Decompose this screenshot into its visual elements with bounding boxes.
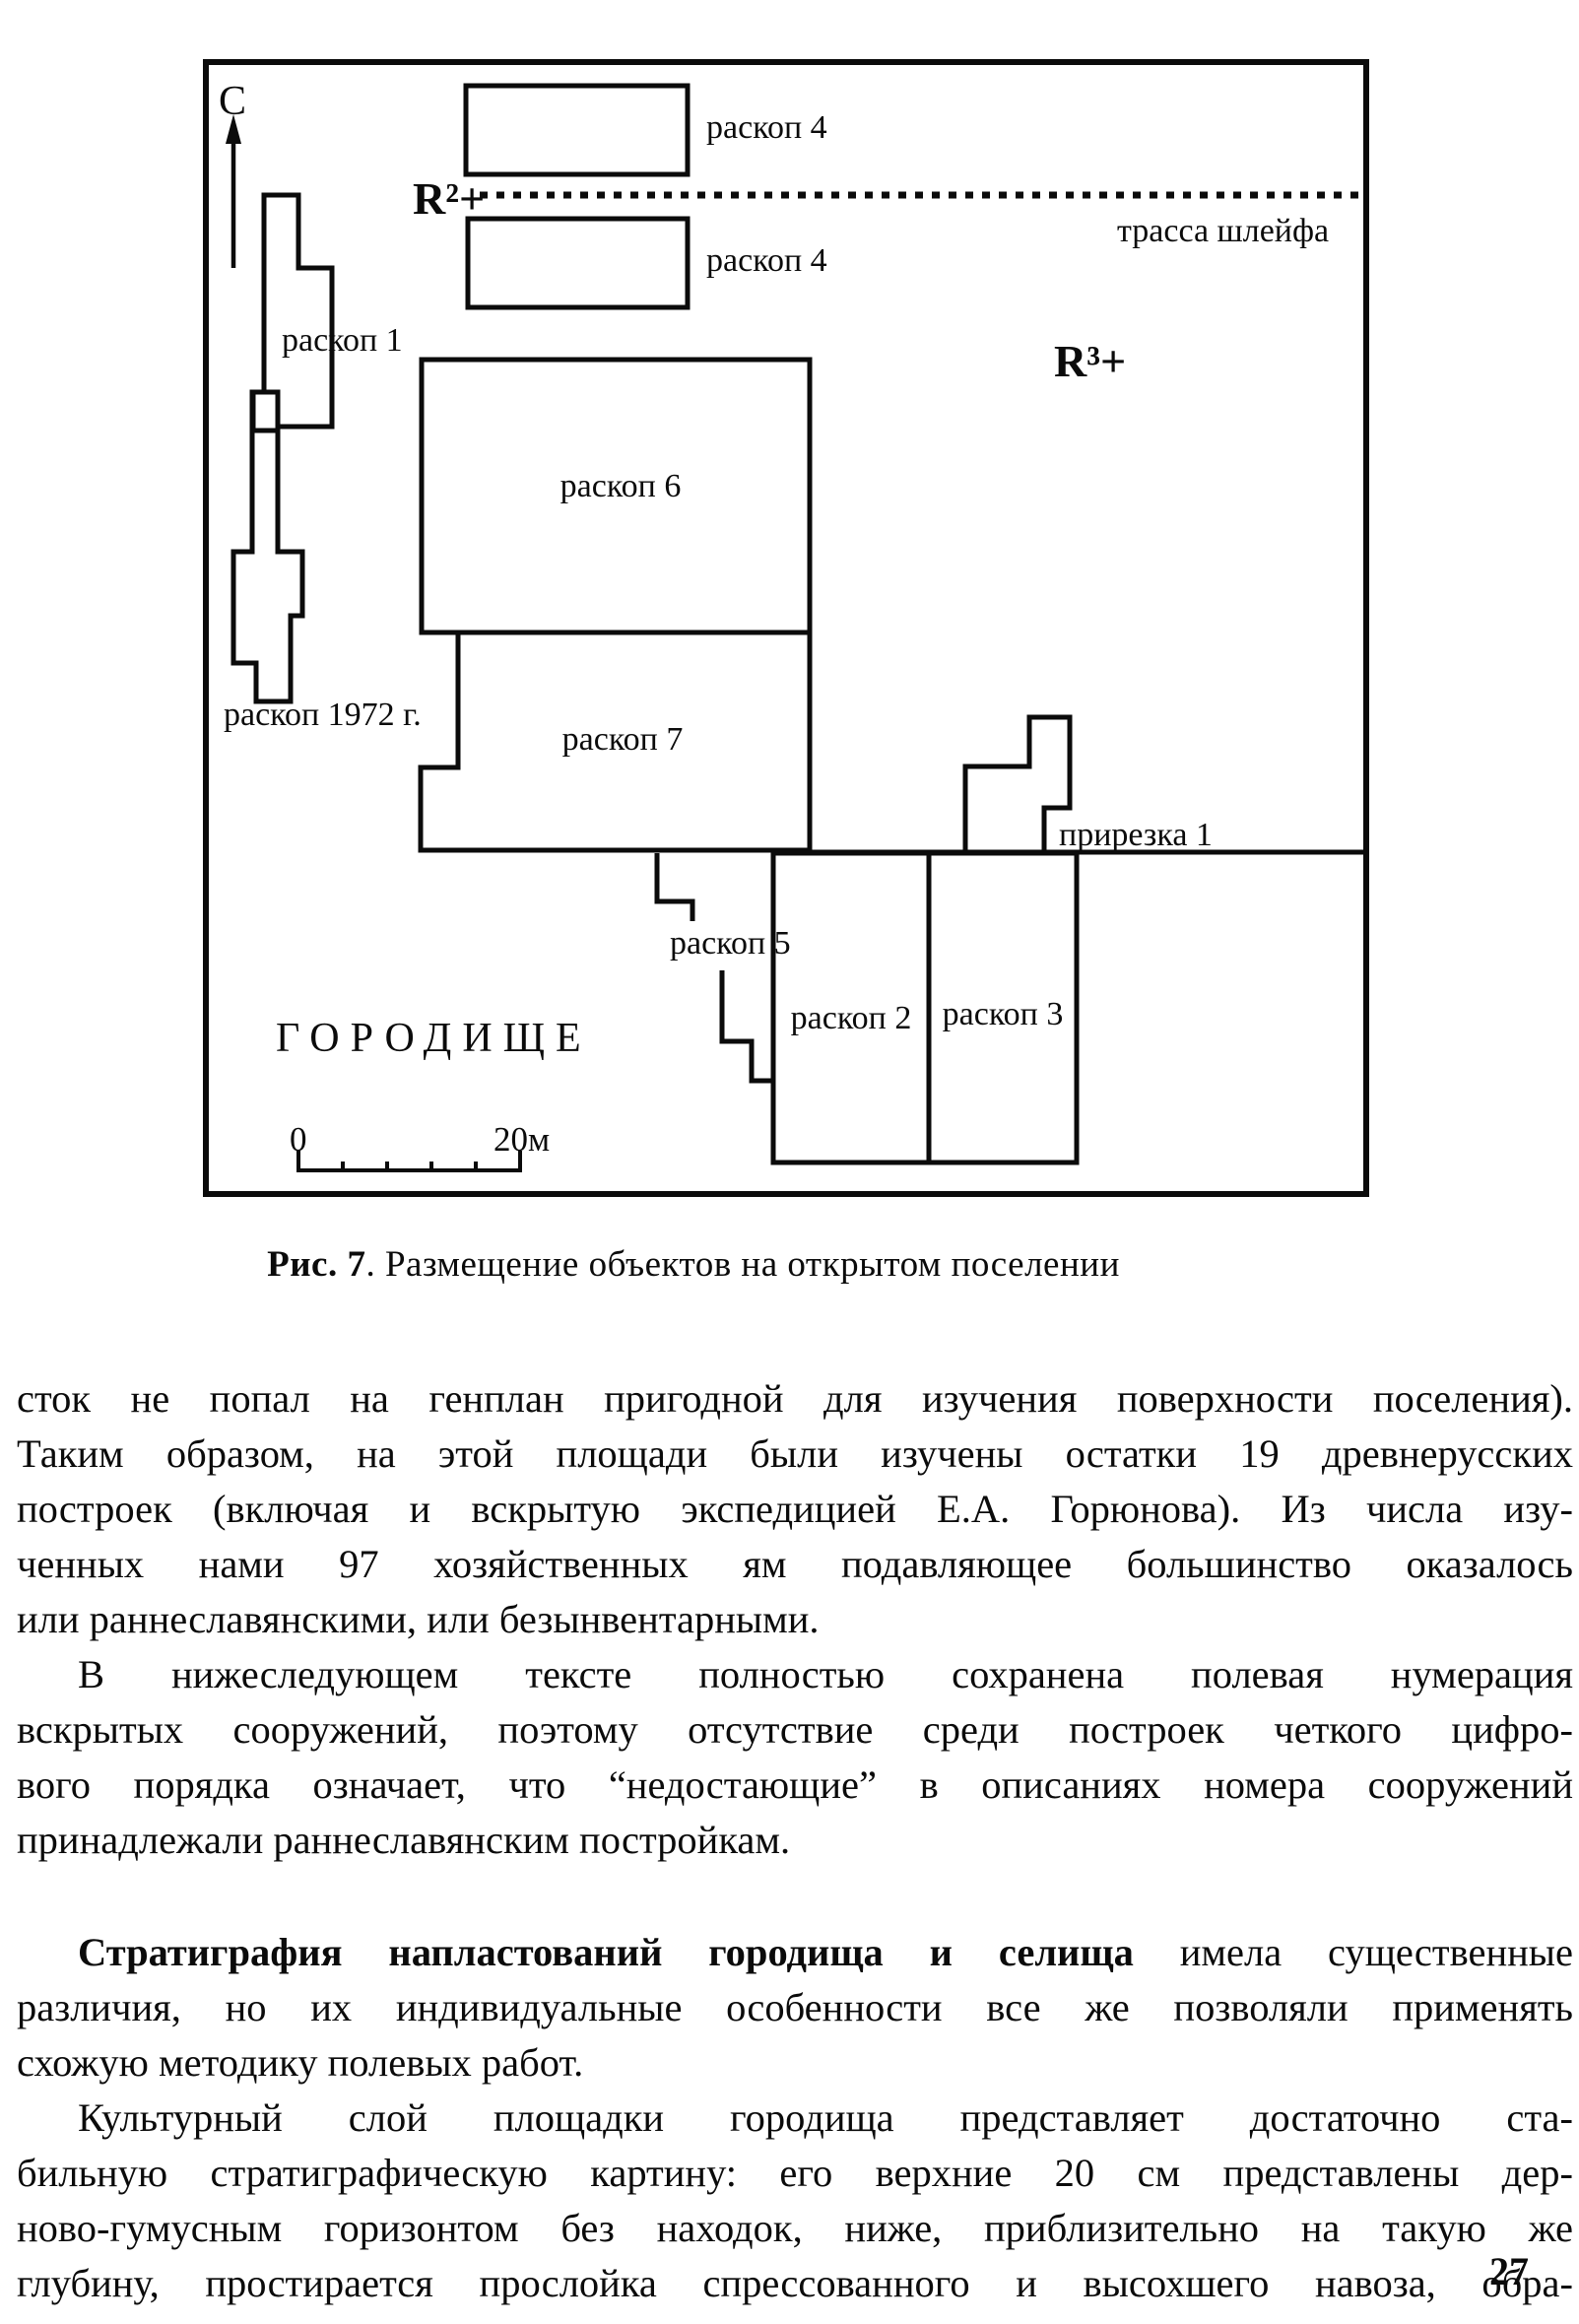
prirezka1-outline bbox=[965, 717, 1070, 853]
text-line: бильную стратиграфическую картину: его в… bbox=[17, 2146, 1573, 2201]
north-label: С bbox=[219, 79, 246, 124]
figure-caption-number: Рис. 7 bbox=[267, 1244, 365, 1285]
raskop2-label: раскоп 2 bbox=[791, 1000, 912, 1036]
text-line: сток не попал на генплан пригодной для и… bbox=[17, 1371, 1573, 1427]
text-line: построек (включая и вскрытую экспедицией… bbox=[17, 1482, 1573, 1537]
raskop1972-outline bbox=[233, 392, 302, 701]
paragraph-1: сток не попал на генплан пригодной для и… bbox=[17, 1371, 1573, 1647]
text-line: или раннеславянскими, или безынвентарным… bbox=[17, 1592, 1573, 1647]
stratigraphy-bold-run: Стратиграфия напластований городища и се… bbox=[78, 1930, 1134, 1974]
raskop3-label: раскоп 3 bbox=[943, 996, 1064, 1032]
benchmark-r2-label: R²+ bbox=[413, 173, 485, 224]
raskop4-top-outline bbox=[466, 86, 688, 174]
raskop5-outline-lower bbox=[722, 970, 773, 1081]
raskop4-top-label: раскоп 4 bbox=[706, 109, 827, 146]
raskop5-outline-upper bbox=[657, 853, 692, 921]
cable-route-label: трасса шлейфа bbox=[1117, 213, 1329, 249]
scale-bar bbox=[298, 1151, 520, 1170]
raskop1-outline bbox=[253, 195, 332, 431]
site-plan-drawing: С раскоп 4 R²+ трасса шлейфа раскоп 4 ра… bbox=[203, 59, 1369, 1197]
benchmark-r3-label: R³+ bbox=[1054, 336, 1126, 386]
raskop6-label: раскоп 6 bbox=[560, 468, 682, 504]
page-number: 27 bbox=[1489, 2248, 1529, 2294]
text-line: различия, но их индивидуальные особеннос… bbox=[17, 1980, 1573, 2035]
text-line: глубину, простирается прослойка спрессов… bbox=[17, 2256, 1573, 2311]
raskop4-bottom-outline bbox=[468, 219, 688, 307]
prirezka1-label: прирезка 1 bbox=[1059, 817, 1213, 853]
paragraph-2: В нижеследующем тексте полностью сохране… bbox=[17, 1647, 1573, 1868]
raskop4-bottom-label: раскоп 4 bbox=[706, 242, 827, 279]
stratigraphy-regular-run: имела существенные bbox=[1134, 1930, 1573, 1974]
text-line: вого порядка означает, что “недостающие”… bbox=[17, 1758, 1573, 1813]
raskop1972-label: раскоп 1972 г. bbox=[224, 697, 422, 733]
scanned-book-page: С раскоп 4 R²+ трасса шлейфа раскоп 4 ра… bbox=[0, 0, 1579, 2324]
text-line: Стратиграфия напластований городища и се… bbox=[17, 1925, 1573, 1980]
text-line: В нижеследующем тексте полностью сохране… bbox=[17, 1647, 1573, 1702]
paragraph-3: Стратиграфия напластований городища и се… bbox=[17, 1925, 1573, 2091]
raskop1-label: раскоп 1 bbox=[282, 322, 403, 359]
text-line: принадлежали раннеславянским постройкам. bbox=[17, 1813, 1573, 1868]
paragraph-4: Культурный слой площадки городища предст… bbox=[17, 2091, 1573, 2311]
text-line: ново-гумусным горизонтом без находок, ни… bbox=[17, 2201, 1573, 2256]
text-line: вскрытых сооружений, поэтому отсутствие … bbox=[17, 1702, 1573, 1758]
gorodishche-label: ГОРОДИЩЕ bbox=[276, 1016, 592, 1061]
body-text: сток не попал на генплан пригодной для и… bbox=[17, 1371, 1573, 2311]
text-line: ченных нами 97 хозяйственных ям подавляю… bbox=[17, 1537, 1573, 1592]
figure-caption-text: . Размещение объектов на открытом поселе… bbox=[365, 1244, 1119, 1285]
figure-caption: Рис. 7. Размещение объектов на открытом … bbox=[0, 1243, 1387, 1286]
text-line: Таким образом, на этой площади были изуч… bbox=[17, 1427, 1573, 1482]
figure-7-site-plan: С раскоп 4 R²+ трасса шлейфа раскоп 4 ра… bbox=[203, 59, 1369, 1202]
text-line: Культурный слой площадки городища предст… bbox=[17, 2091, 1573, 2146]
raskop7-label: раскоп 7 bbox=[562, 721, 684, 758]
text-line: схожую методику полевых работ. bbox=[17, 2035, 1573, 2091]
